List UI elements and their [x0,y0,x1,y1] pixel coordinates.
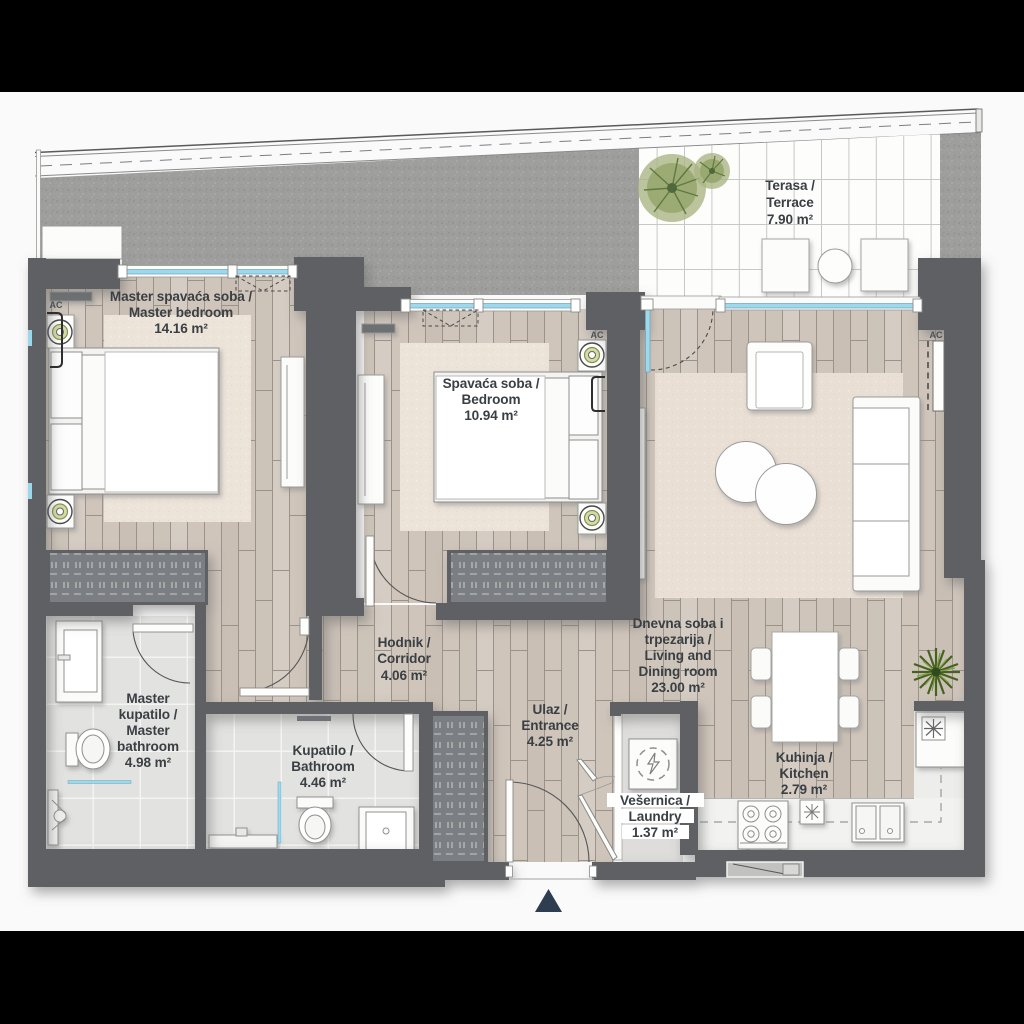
svg-text:1.37 m²: 1.37 m² [632,825,679,840]
svg-text:AC: AC [930,330,943,340]
svg-text:10.94 m²: 10.94 m² [464,408,518,423]
svg-text:bathroom: bathroom [117,739,179,754]
svg-text:Spavaća soba /: Spavaća soba / [443,376,540,391]
svg-text:4.98 m²: 4.98 m² [125,755,172,770]
svg-text:Dining room: Dining room [639,664,718,679]
svg-text:4.46 m²: 4.46 m² [300,775,347,790]
svg-text:trpezarija /: trpezarija / [645,632,712,647]
svg-text:4.06 m²: 4.06 m² [381,668,428,683]
svg-text:Ulaz /: Ulaz / [533,702,568,717]
svg-text:Master bedroom: Master bedroom [129,305,233,320]
svg-text:2.79 m²: 2.79 m² [781,782,828,797]
svg-text:Terasa /: Terasa / [765,178,815,193]
svg-text:Kupatilo /: Kupatilo / [293,743,354,758]
svg-text:AC: AC [50,300,63,310]
svg-text:Entrance: Entrance [521,718,579,733]
svg-text:Master: Master [126,723,170,738]
svg-text:Dnevna soba i: Dnevna soba i [633,616,724,631]
svg-text:Kitchen: Kitchen [779,766,828,781]
svg-text:14.16 m²: 14.16 m² [154,321,208,336]
svg-text:Bathroom: Bathroom [291,759,354,774]
svg-text:Living and: Living and [645,648,712,663]
svg-text:23.00 m²: 23.00 m² [651,680,705,695]
svg-text:Laundry: Laundry [629,809,682,824]
svg-text:Kuhinja /: Kuhinja / [776,750,833,765]
svg-text:kupatilo /: kupatilo / [119,707,178,722]
svg-text:AC: AC [591,330,604,340]
svg-text:7.90 m²: 7.90 m² [767,212,814,227]
svg-text:Master spavaća soba /: Master spavaća soba / [110,289,253,304]
svg-text:Vešernica /: Vešernica / [620,793,690,808]
svg-text:Bedroom: Bedroom [462,392,521,407]
svg-text:Corridor: Corridor [377,651,431,666]
svg-text:Terrace: Terrace [766,195,814,210]
svg-text:Hodnik /: Hodnik / [378,635,431,650]
svg-text:Master: Master [126,691,170,706]
svg-text:4.25 m²: 4.25 m² [527,734,574,749]
